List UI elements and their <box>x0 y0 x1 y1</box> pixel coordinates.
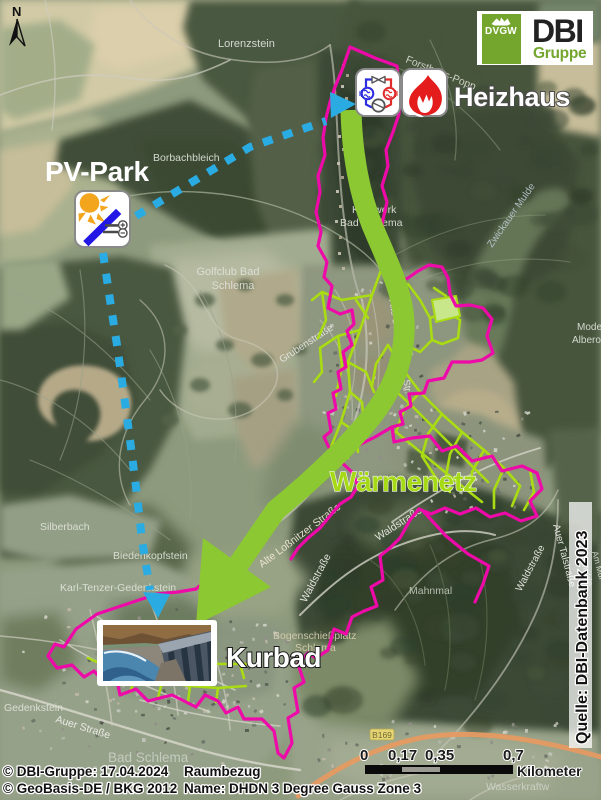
svg-text:Gruppe: Gruppe <box>533 45 587 62</box>
svg-text:Mode: Mode <box>577 322 601 333</box>
svg-text:Kilometer: Kilometer <box>517 763 582 779</box>
svg-text:Borbachbleich: Borbachbleich <box>153 152 220 164</box>
svg-text:Name: DHDN 3 Degree Gauss Zone: Name: DHDN 3 Degree Gauss Zone 3 <box>184 781 422 796</box>
svg-text:Gedenkstein: Gedenkstein <box>4 702 63 714</box>
svg-text:N: N <box>12 4 21 19</box>
svg-text:Lorenzstein: Lorenzstein <box>218 38 275 50</box>
svg-text:Silberbach: Silberbach <box>40 521 90 533</box>
svg-text:Raumbezug: Raumbezug <box>184 764 261 779</box>
svg-text:Karl-Tenzer-Gedenkstein: Karl-Tenzer-Gedenkstein <box>60 582 176 594</box>
svg-text:Wärmenetz: Wärmenetz <box>330 466 477 497</box>
svg-text:PV-Park: PV-Park <box>45 156 149 187</box>
svg-text:Quelle: DBI-Datenbank 2023: Quelle: DBI-Datenbank 2023 <box>574 531 591 745</box>
svg-text:0,17: 0,17 <box>388 747 417 764</box>
svg-text:0: 0 <box>360 747 368 764</box>
svg-text:Biedenkopfstein: Biedenkopfstein <box>113 550 188 562</box>
svg-text:Bad Schlema: Bad Schlema <box>108 750 189 765</box>
svg-text:Golfclub Bad: Golfclub Bad <box>197 266 260 278</box>
svg-text:Wasserkraftw: Wasserkraftw <box>486 781 550 793</box>
svg-text:Albero: Albero <box>572 335 601 346</box>
svg-text:© GeoBasis-DE / BKG 2012: © GeoBasis-DE / BKG 2012 <box>3 781 177 796</box>
svg-text:DBI: DBI <box>532 13 583 49</box>
svg-text:DVGW: DVGW <box>485 26 517 37</box>
svg-text:B169: B169 <box>372 730 392 740</box>
svg-text:Schlema: Schlema <box>212 280 256 292</box>
svg-text:Heizhaus: Heizhaus <box>454 82 570 112</box>
svg-text:0,35: 0,35 <box>425 747 454 764</box>
svg-text:Mahnmal: Mahnmal <box>409 585 452 597</box>
svg-text:© DBI-Gruppe: 17.04.2024: © DBI-Gruppe: 17.04.2024 <box>3 764 169 779</box>
svg-text:Kurbad: Kurbad <box>226 642 321 673</box>
svg-text:0,7: 0,7 <box>503 747 524 764</box>
